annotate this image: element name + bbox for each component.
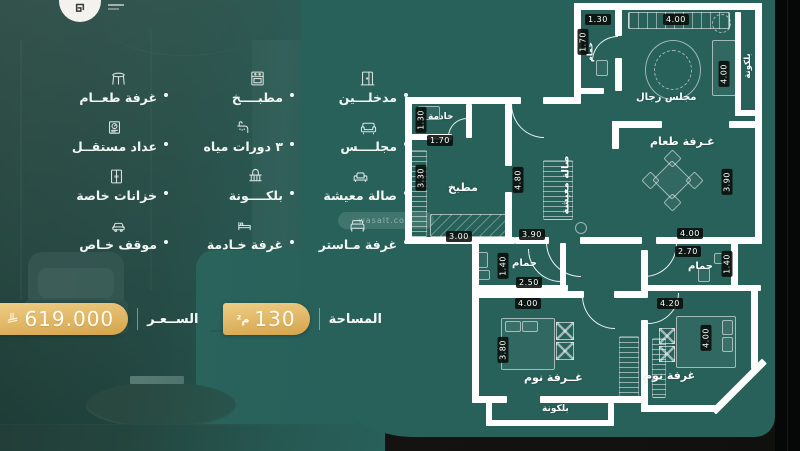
wall [735,110,761,116]
info-bar: المساحة 130 م² الســعـر 619.000 [30,302,382,336]
feature-label: مطبــــخ [232,90,283,105]
feature-label: ٣ دورات مياه [204,139,284,154]
wall [641,405,719,412]
feature-balcony: بلكــــونة [172,168,294,203]
feature-label: غرفة طعــام [79,90,157,105]
room-label: غـرفة طعام [650,135,715,148]
wall [574,3,762,10]
dimension-label: 1.40 [498,253,509,279]
pillow [522,321,538,332]
wall [574,88,604,94]
living-room-icon [352,168,369,185]
dimension-label: 4.00 [515,298,541,309]
bullet-dot [164,142,168,146]
feature-majlis: مجلــــس [298,119,408,154]
dimension-label: 4.00 [701,325,712,351]
wall [472,291,584,298]
dimension-label: 3.90 [722,169,733,195]
room-label: غــرفة نوم [524,371,583,384]
bullet-dot [290,93,294,97]
balcony-icon [247,168,264,185]
feature-bathrooms: ٣ دورات مياه [172,119,294,154]
divider-line [319,308,320,330]
door-icon [359,70,376,87]
room-label: مطبخ [448,181,478,194]
closet-icon [108,168,125,185]
majlis-rug [654,50,692,90]
divider-line [787,0,788,451]
home-mark-icon [70,0,90,17]
bullet-dot [164,93,168,97]
dimension-label: 1.30 [416,107,427,133]
sink [476,270,490,280]
price-value: 619.000 [24,307,114,331]
wall [615,58,622,91]
nightstand [556,322,574,340]
feature-entrances: مدخلـــين [298,70,408,105]
majlis-sofa-icon [360,119,377,136]
wall [543,97,581,104]
dimension-label: 3.30 [416,165,427,191]
feature-label: خزانات خاصة [76,188,157,203]
dimension-label: 4.80 [513,167,524,193]
parking-icon [110,217,127,234]
dimension-label: 1.40 [722,251,733,277]
feature-label: بلكــــونة [229,188,283,203]
maid-room-icon [236,217,253,234]
feature-label: مجلــــس [340,139,397,154]
kitchen-counter [411,150,427,237]
feature-label: عداد مستقــل [72,139,157,154]
dimension-label: 2.70 [675,246,701,257]
feature-kitchen: مطبــــخ [172,70,294,105]
dimension-label: 4.00 [663,14,689,25]
room-label: بلكونة [542,404,569,414]
wall [729,121,762,128]
feature-maid-room: غرفة خـادمة [172,217,294,252]
area-unit: م² [237,313,250,326]
area-pill: 130 م² [223,303,310,335]
logo-caption-line [108,8,119,10]
toilet [596,60,608,76]
feature-label: مدخلـــين [339,90,397,105]
feature-parking: موقف خـاص [16,217,168,252]
wall [486,420,614,426]
nightstand [556,342,574,360]
room-label: مجلس رجال [636,92,697,103]
room-label: خادمة [428,112,454,122]
side-table [575,222,587,234]
feature-label: غرفة مـاستر [319,237,397,252]
ad-canvas: مدخلـــين مطبــــخ غرفة طعــام مجلــــس … [0,0,800,451]
wall [615,3,622,36]
feature-dining-room: غرفة طعــام [16,70,168,105]
bathrooms-icon [235,119,252,136]
wall [405,97,512,104]
dimension-label: 3.90 [519,229,545,240]
saudi-riyal-symbol-icon [6,310,19,329]
wall [608,403,614,426]
feature-label: غرفة خـادمة [207,237,283,252]
toilet [476,252,488,268]
feature-meter: عداد مستقــل [16,119,168,154]
bullet-dot [290,191,294,195]
bullet-dot [164,191,168,195]
wardrobe [619,336,639,400]
kitchen-icon [249,70,266,87]
dimension-label: 1.30 [585,14,611,25]
room-label: حمام [586,42,595,62]
feature-closets: خزانات خاصة [16,168,168,203]
logo-caption-line [108,4,124,6]
pillow [505,321,521,332]
dimension-label: 3.80 [498,337,509,363]
bullet-dot [164,240,168,244]
bullet-dot [290,142,294,146]
wall [641,285,761,291]
dining-icon [110,70,127,87]
pillow [722,320,733,335]
bullet-dot [290,240,294,244]
pillow [722,337,733,352]
dimension-label: 2.50 [516,277,542,288]
wall [614,291,648,298]
dimension-label: 4.00 [677,228,703,239]
meter-icon [106,119,123,136]
dimension-label: 3.00 [446,231,472,242]
wall [580,237,642,244]
dimension-label: 1.70 [427,135,453,146]
wall [505,97,521,104]
wardrobe [652,338,666,398]
wall [656,237,762,244]
room-label: حمام [512,258,537,269]
divider-line [137,308,138,330]
room-label: غرفة نوم [644,369,695,382]
price-pill: 619.000 [0,303,128,335]
price-label: الســعـر [147,312,198,327]
dimension-label: 4.00 [719,61,730,87]
feature-label: صالة معيشة [323,188,397,203]
wall [751,285,758,369]
room-label: بلكونة [743,53,753,78]
wall [612,121,662,128]
area-value: 130 [254,307,295,331]
feature-living-room: صالة معيشة [298,168,408,203]
feature-label: موقف خـاص [79,237,157,252]
room-label: حمام [688,261,713,272]
dimension-label: 4.20 [657,298,683,309]
room-label: صالة معيشة [561,156,572,215]
area-label: المساحة [329,312,382,327]
plant [712,14,731,33]
wall [612,121,619,149]
wall [505,104,512,166]
